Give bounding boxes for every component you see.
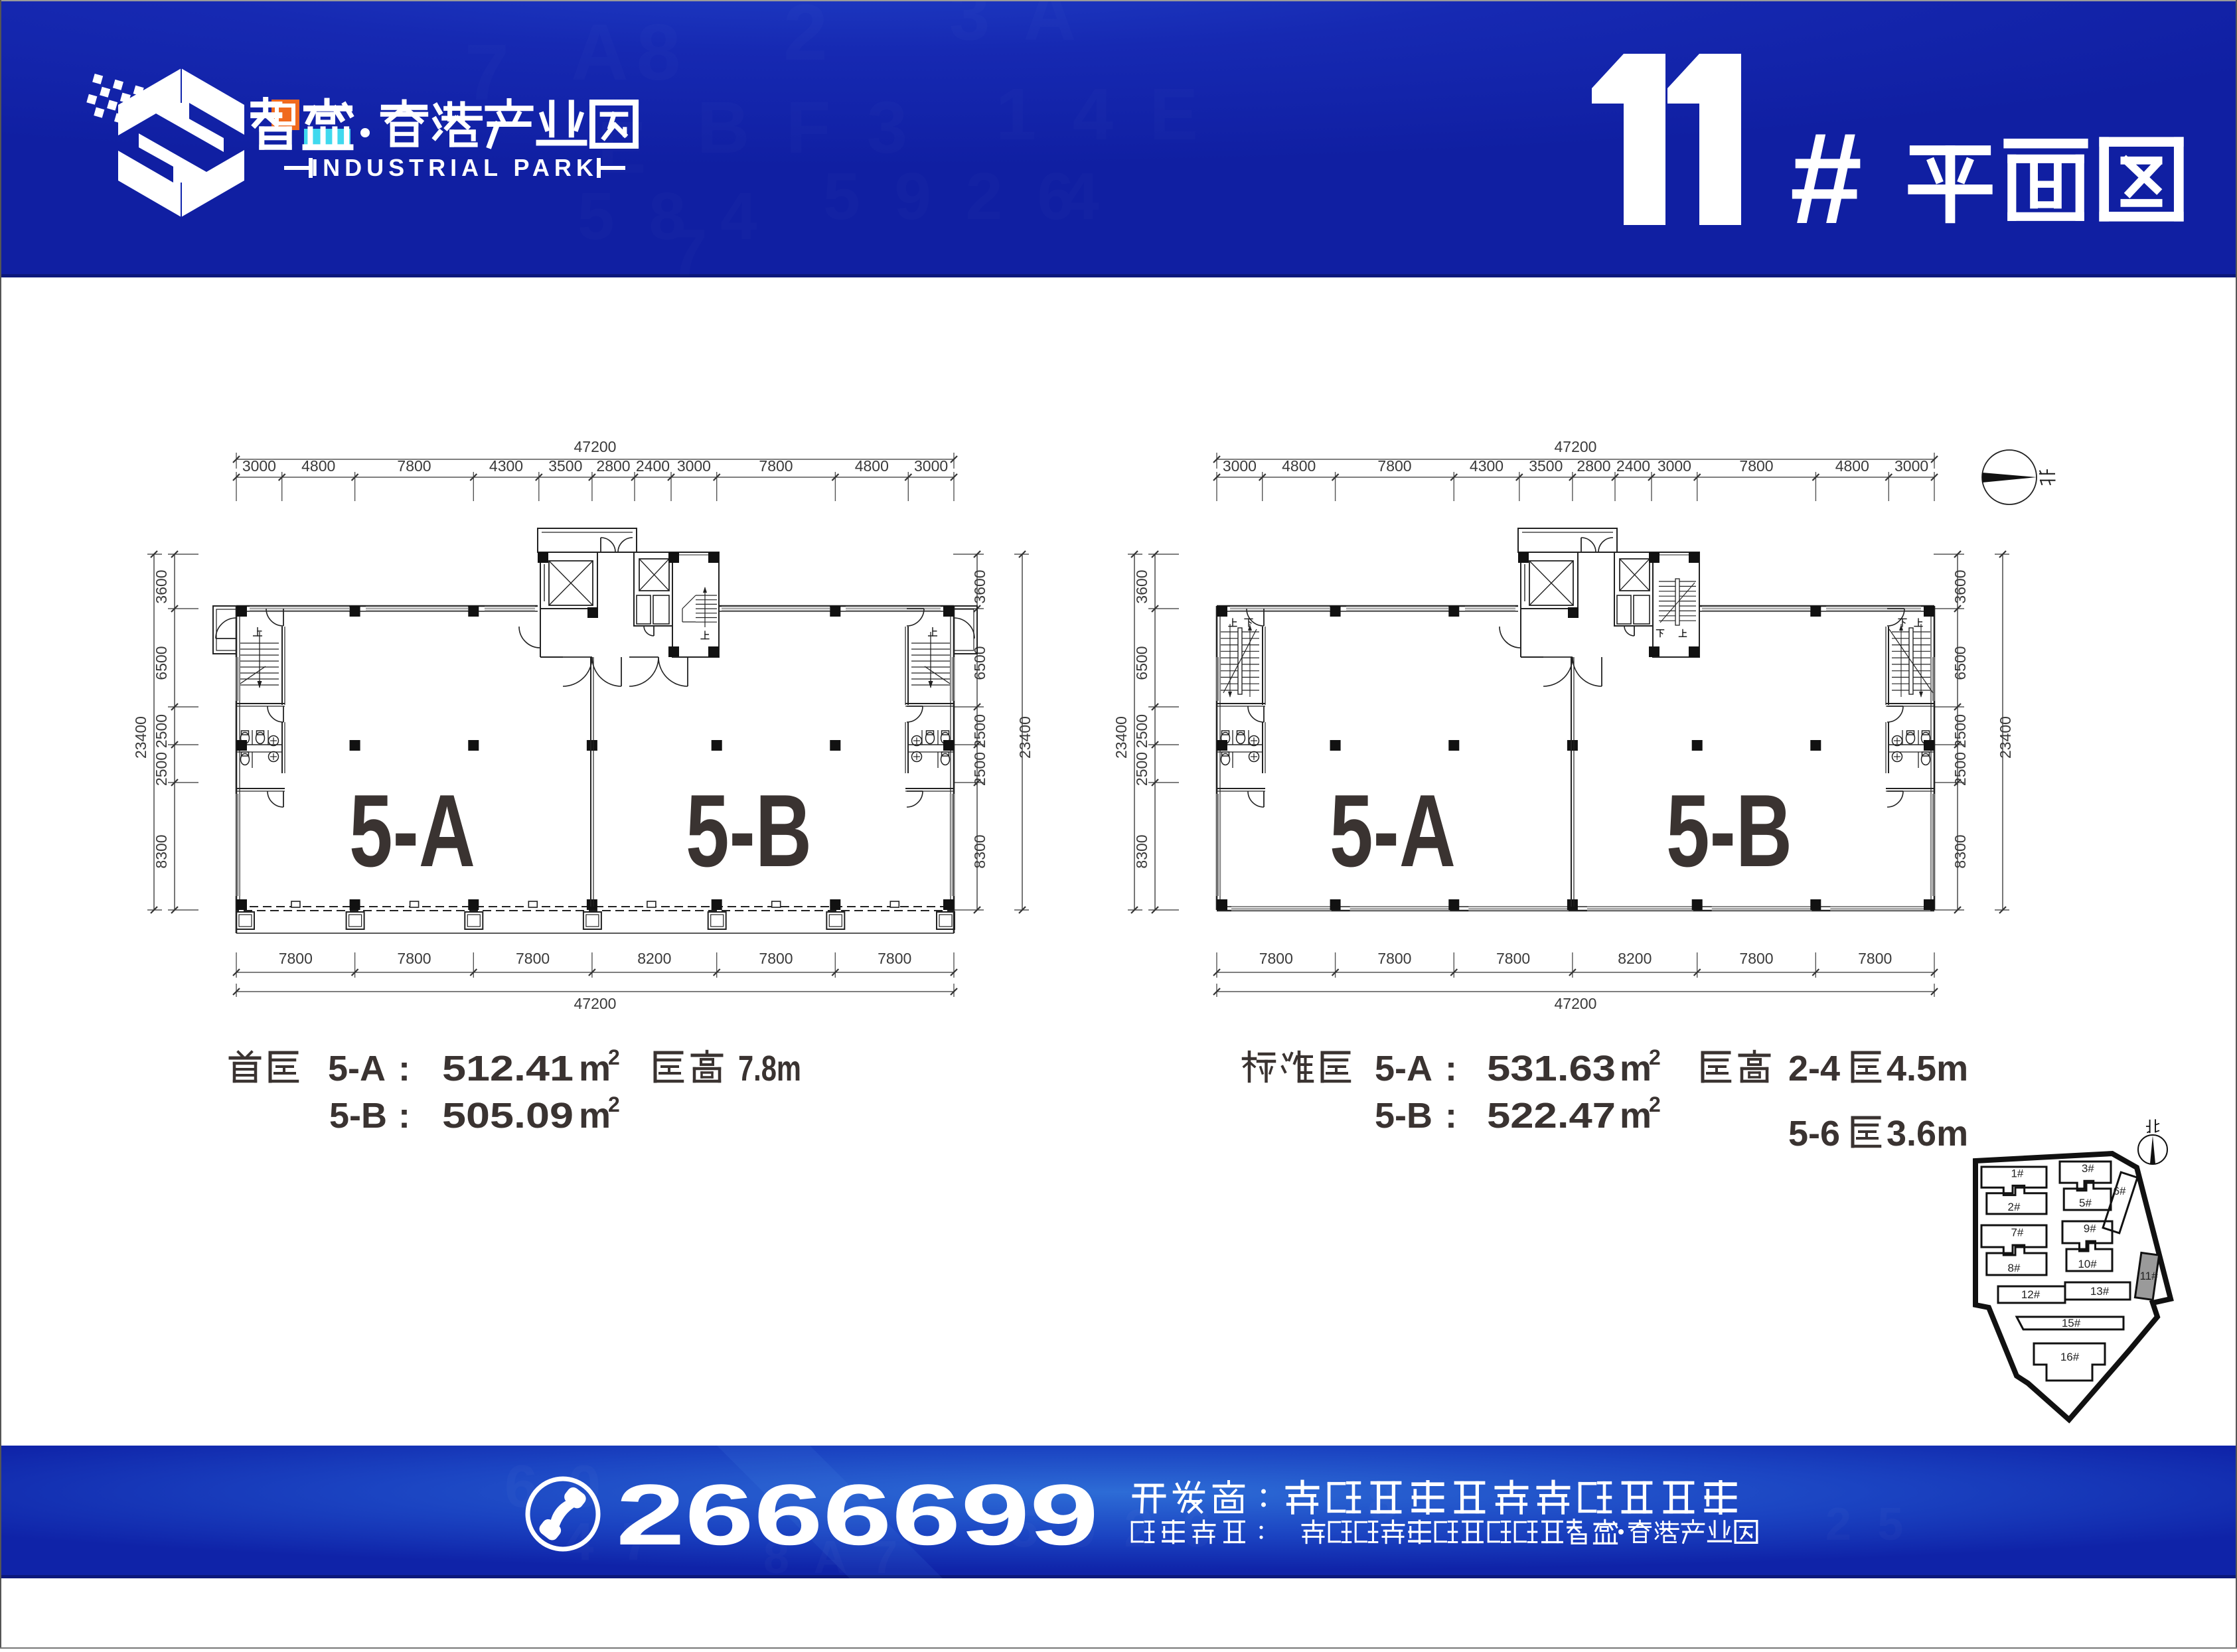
- svg-text:505.09: 505.09: [442, 1096, 574, 1136]
- svg-text:6500: 6500: [1133, 646, 1150, 680]
- svg-text:8#: 8#: [2008, 1262, 2021, 1274]
- svg-text:531.63: 531.63: [1487, 1049, 1616, 1089]
- svg-text:2-4: 2-4: [1788, 1049, 1840, 1089]
- svg-text:2800: 2800: [596, 457, 630, 475]
- svg-text:7: 7: [670, 216, 716, 290]
- svg-text:11#: 11#: [2139, 1270, 2158, 1282]
- svg-text:2500: 2500: [1952, 752, 1969, 786]
- svg-text:15#: 15#: [2062, 1317, 2081, 1329]
- svg-text:7800: 7800: [516, 950, 550, 967]
- svg-text:10#: 10#: [2078, 1258, 2097, 1270]
- svg-text:2400: 2400: [1616, 457, 1650, 475]
- svg-text:m: m: [579, 1049, 611, 1089]
- svg-text:7800: 7800: [1259, 950, 1293, 967]
- svg-text:5-A: 5-A: [328, 1049, 386, 1089]
- svg-text:47200: 47200: [574, 438, 617, 455]
- svg-text:7#: 7#: [2011, 1227, 2023, 1239]
- svg-text:2: 2: [608, 1092, 620, 1116]
- svg-text:2400: 2400: [636, 457, 670, 475]
- svg-text:3500: 3500: [1529, 457, 1563, 475]
- svg-text::: :: [1445, 1049, 1457, 1089]
- svg-text:8200: 8200: [637, 950, 671, 967]
- svg-text:6500: 6500: [971, 646, 988, 680]
- svg-text:7800: 7800: [1377, 457, 1411, 475]
- svg-text:3.6m: 3.6m: [1887, 1114, 1968, 1154]
- svg-text:5-B: 5-B: [1375, 1096, 1432, 1136]
- svg-text:5-B: 5-B: [1666, 773, 1792, 888]
- svg-text:7800: 7800: [878, 950, 911, 967]
- svg-text:INDUSTRIAL PARK: INDUSTRIAL PARK: [311, 154, 598, 181]
- svg-text:7800: 7800: [759, 457, 793, 475]
- svg-text:7800: 7800: [1739, 457, 1773, 475]
- svg-text:2500: 2500: [971, 752, 988, 786]
- svg-text:3000: 3000: [1894, 457, 1928, 475]
- svg-text:3000: 3000: [677, 457, 711, 475]
- svg-text:2500: 2500: [971, 714, 988, 748]
- svg-text:5-A: 5-A: [349, 773, 475, 888]
- svg-text:m: m: [579, 1096, 611, 1136]
- svg-text:7800: 7800: [759, 950, 793, 967]
- svg-text:6500: 6500: [1952, 646, 1969, 680]
- svg-text:2500: 2500: [1952, 714, 1969, 748]
- svg-text:8300: 8300: [153, 834, 170, 868]
- svg-text:3600: 3600: [971, 569, 988, 603]
- svg-text:2 5: 2 5: [1825, 1498, 1910, 1550]
- svg-text:4800: 4800: [1282, 457, 1316, 475]
- svg-text:3000: 3000: [914, 457, 948, 475]
- svg-text:3600: 3600: [1133, 569, 1150, 603]
- svg-text:m: m: [1620, 1049, 1652, 1089]
- svg-text::: :: [1445, 1096, 1457, 1136]
- svg-text:m: m: [1620, 1096, 1652, 1136]
- svg-text:A8: A8: [571, 8, 688, 97]
- svg-text:47200: 47200: [1555, 438, 1597, 455]
- svg-text:5-B: 5-B: [329, 1096, 387, 1136]
- svg-text:2500: 2500: [153, 714, 170, 748]
- svg-text:8300: 8300: [971, 834, 988, 868]
- svg-text:2: 2: [608, 1045, 620, 1069]
- svg-text:8300: 8300: [1952, 834, 1969, 868]
- svg-text:2#: 2#: [2008, 1201, 2021, 1213]
- svg-text:3600: 3600: [1952, 569, 1969, 603]
- svg-text:4300: 4300: [489, 457, 523, 475]
- svg-text:12#: 12#: [2021, 1288, 2041, 1301]
- svg-text:7800: 7800: [1496, 950, 1530, 967]
- svg-text:2: 2: [1649, 1092, 1661, 1116]
- svg-text:47200: 47200: [574, 995, 617, 1012]
- svg-text:3#: 3#: [2082, 1162, 2094, 1175]
- svg-text:47200: 47200: [1555, 995, 1597, 1012]
- svg-text:9#: 9#: [2084, 1223, 2096, 1235]
- svg-text:B F 3: B F 3: [697, 87, 915, 169]
- svg-text:2666699: 2666699: [616, 1466, 1099, 1563]
- svg-text:2500: 2500: [1133, 752, 1150, 786]
- svg-text:1#: 1#: [2011, 1167, 2023, 1180]
- svg-text:4800: 4800: [1835, 457, 1869, 475]
- svg-text:2800: 2800: [1577, 457, 1610, 475]
- svg-text:23400: 23400: [132, 716, 149, 759]
- svg-text::: :: [398, 1049, 410, 1089]
- svg-text:3000: 3000: [242, 457, 276, 475]
- svg-text:7800: 7800: [279, 950, 313, 967]
- svg-text:23400: 23400: [1997, 716, 2014, 759]
- svg-text:4800: 4800: [301, 457, 335, 475]
- svg-text:7800: 7800: [397, 457, 431, 475]
- svg-text:3500: 3500: [548, 457, 582, 475]
- svg-text:16#: 16#: [2060, 1351, 2080, 1363]
- svg-text:3 A: 3 A: [949, 0, 1084, 56]
- svg-text:4300: 4300: [1470, 457, 1504, 475]
- svg-text:2: 2: [1649, 1045, 1661, 1069]
- svg-text:7800: 7800: [1858, 950, 1892, 967]
- svg-text:7800: 7800: [397, 950, 431, 967]
- svg-text:4: 4: [1062, 159, 1107, 234]
- svg-text:7.8m: 7.8m: [738, 1049, 801, 1089]
- svg-text:5 9 2 6: 5 9 2 6: [823, 159, 1082, 234]
- svg-text:5-A: 5-A: [1375, 1049, 1432, 1089]
- svg-text:6#: 6#: [2114, 1185, 2126, 1197]
- svg-text:522.47: 522.47: [1487, 1096, 1616, 1136]
- svg-text:3600: 3600: [153, 569, 170, 603]
- svg-text:#: #: [1790, 106, 1862, 251]
- svg-text:3000: 3000: [1223, 457, 1257, 475]
- svg-text:7800: 7800: [1377, 950, 1411, 967]
- svg-text:4.5m: 4.5m: [1887, 1049, 1968, 1089]
- svg-text:5-A: 5-A: [1330, 773, 1456, 888]
- svg-text:2500: 2500: [1133, 714, 1150, 748]
- svg-text:23400: 23400: [1113, 716, 1130, 759]
- svg-text:512.41: 512.41: [442, 1049, 574, 1089]
- svg-text:23400: 23400: [1016, 716, 1034, 759]
- svg-text:1 4 E: 1 4 E: [996, 74, 1206, 155]
- svg-text:5-B: 5-B: [686, 773, 812, 888]
- svg-text:4800: 4800: [855, 457, 889, 475]
- svg-text:5#: 5#: [2079, 1197, 2092, 1209]
- svg-text:8200: 8200: [1618, 950, 1652, 967]
- svg-text:5-6: 5-6: [1788, 1114, 1840, 1154]
- svg-text::: :: [398, 1096, 410, 1136]
- svg-text:3000: 3000: [1658, 457, 1691, 475]
- svg-text:8300: 8300: [1133, 834, 1150, 868]
- svg-text:6500: 6500: [153, 646, 170, 680]
- svg-text:2: 2: [783, 0, 836, 77]
- svg-text:7800: 7800: [1739, 950, 1773, 967]
- svg-text:13#: 13#: [2090, 1285, 2110, 1298]
- svg-text:2500: 2500: [153, 752, 170, 786]
